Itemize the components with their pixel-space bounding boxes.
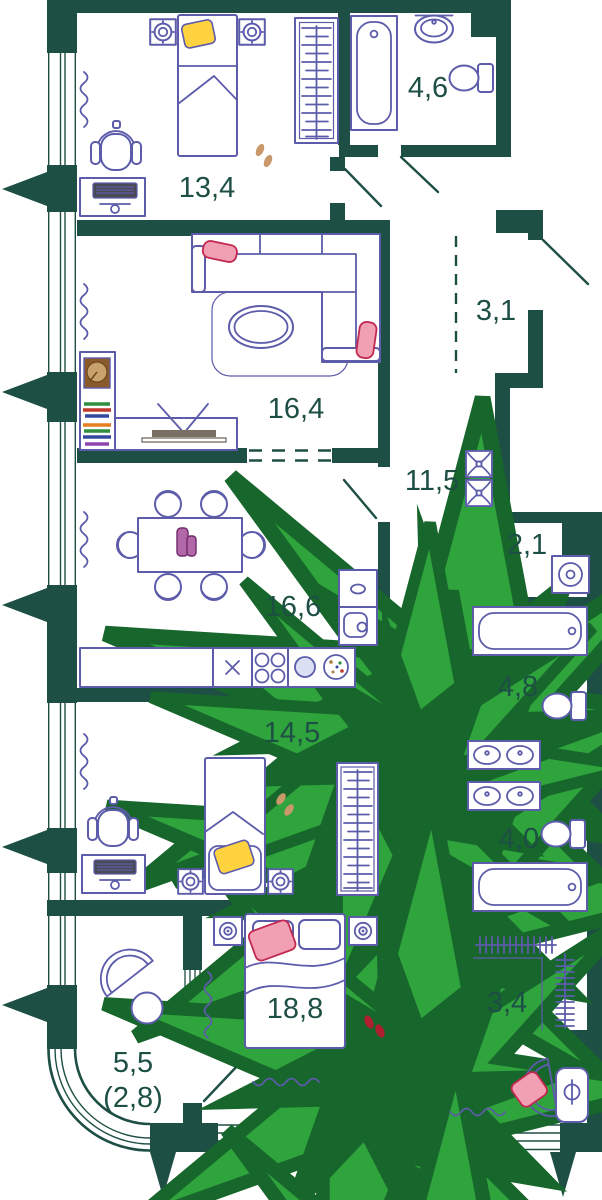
floor-plan-drawing: 13,4 4,6 3,1 (0, 0, 602, 1200)
office-chair-icon (91, 121, 141, 170)
fan-armchair-icon (89, 938, 153, 997)
desk-icon (82, 855, 145, 893)
area-label-laundry: 2,1 (507, 529, 547, 561)
toilet-icon (450, 64, 494, 92)
wardrobe-icon (295, 18, 338, 143)
washing-machine-icon (552, 556, 589, 593)
area-label-bathroom-top: 4,6 (408, 72, 448, 104)
dining-chair-icon (155, 491, 181, 517)
footprints-icon (254, 143, 274, 169)
dining-chair-icon (201, 574, 227, 600)
tv-stand-icon (113, 404, 237, 450)
area-label-living: 16,4 (268, 393, 324, 425)
bathtub-icon (473, 607, 587, 655)
floor-plan-page: 13,4 4,6 3,1 (0, 0, 602, 1200)
bathtub-icon (473, 863, 587, 911)
ceiling-spot-icon (268, 869, 293, 894)
desk-icon (80, 178, 145, 216)
bowl-icon (295, 657, 315, 677)
area-label-master-bedroom: 18,8 (267, 993, 323, 1025)
ceiling-spot-icon (239, 19, 265, 45)
area-label-hall: 3,1 (476, 295, 516, 327)
bedside-lamp-icon (349, 917, 377, 945)
hob-icon (252, 648, 288, 687)
area-label-balcony-reduced: (2,8) (103, 1082, 163, 1114)
double-washbasin-icon (468, 782, 540, 810)
washbasin-icon (415, 16, 453, 43)
area-label-bathroom-master: 4,0 (499, 823, 539, 855)
area-label-kitchen: 16,6 (265, 591, 321, 623)
bathtub-icon (351, 16, 397, 130)
side-table-icon (556, 1068, 588, 1122)
dining-chair-icon (155, 574, 181, 600)
door-swing-kitchen (344, 480, 376, 518)
kitchen-counter-icon (80, 648, 355, 687)
door-swing-entrance (543, 240, 588, 284)
kitchen-sink-icon (339, 607, 377, 645)
radiator-icon (81, 512, 88, 567)
wardrobe-icon (337, 763, 378, 895)
area-label-bedroom-top: 13,4 (179, 172, 235, 204)
area-label-balcony: 5,5 (113, 1047, 153, 1079)
ceiling-spot-icon (150, 19, 176, 45)
round-table-icon (132, 993, 163, 1024)
toilet-icon (542, 820, 586, 848)
bedside-lamp-icon (214, 917, 242, 945)
room-entrance-hall: 3,1 (476, 295, 516, 327)
shelf-icon (80, 352, 115, 450)
double-bed-icon (245, 914, 345, 1048)
corner-sofa-icon (192, 234, 380, 362)
area-label-bathroom-main: 4,8 (498, 671, 538, 703)
door-swing-bedroom-top (345, 169, 381, 206)
toilet-icon (543, 692, 587, 720)
area-label-bedroom-middle: 14,5 (264, 717, 320, 749)
coffee-table-icon (229, 306, 293, 348)
radiator-icon (81, 284, 88, 339)
radiator-icon (81, 734, 88, 789)
fridge-icon (339, 570, 377, 607)
ceiling-spot-icon (178, 869, 203, 894)
single-bed-icon (178, 15, 237, 156)
ventilation-shaft-icon (466, 451, 492, 477)
area-label-closet: 3,4 (487, 987, 527, 1019)
ventilation-shaft-icon (466, 480, 492, 506)
door-swing-bathroom-top (401, 157, 438, 192)
area-label-corridor: 11,5 (405, 465, 459, 497)
single-bed-icon (205, 758, 265, 894)
dining-chair-icon (201, 491, 227, 517)
double-washbasin-icon (468, 741, 540, 769)
radiator-icon (81, 72, 88, 127)
dashed-opening-living-kitchen (249, 451, 331, 461)
